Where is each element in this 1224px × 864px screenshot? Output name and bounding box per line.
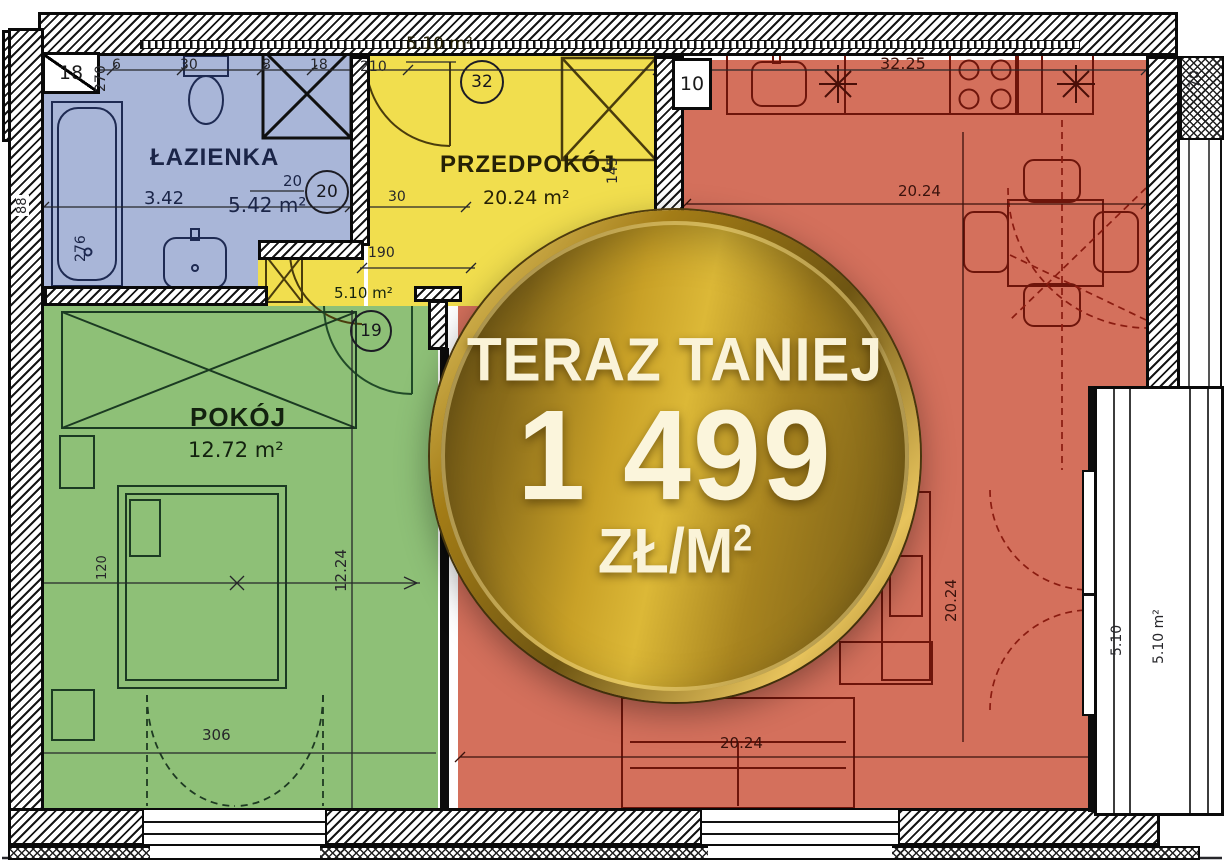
dim-120: 120 — [96, 555, 109, 580]
promo-badge: TERAZ TANIEJ 1 499 ZŁ/M2 — [430, 210, 920, 702]
wall-top — [38, 12, 1178, 56]
balcony — [1094, 386, 1224, 816]
dim-1224: 12.24 — [334, 549, 349, 592]
window-sill-living — [708, 846, 892, 858]
dim-210: 210 — [360, 60, 387, 74]
window-bedroom — [142, 808, 327, 846]
bedroom-tag-circle-label: 19 — [360, 321, 382, 341]
dim-6: 6 — [112, 58, 121, 72]
wall-left — [8, 28, 44, 818]
balcony-rail-upper — [1180, 140, 1222, 386]
wall-bathroom-hallway — [350, 56, 370, 246]
dim-306: 306 — [202, 728, 231, 743]
hallway-tag-area: 5.10 m² — [406, 36, 473, 53]
dim-30-top: 30 — [180, 58, 198, 72]
bedroom-tag-area: 5.10 m² — [334, 286, 393, 301]
bathroom-tag-circle: 20 — [305, 170, 349, 214]
wall-right — [1146, 56, 1180, 392]
shaft-label: 10 — [680, 73, 704, 95]
bathroom-secondary-dim: 3.42 — [144, 190, 184, 208]
ref-box-18: 18 — [42, 52, 100, 94]
bedroom-tag-circle: 19 — [350, 310, 392, 352]
badge-unit-text: ZŁ/M — [598, 516, 733, 586]
dim-30-hall: 30 — [388, 190, 406, 204]
bedroom-area: 12.72 m² — [188, 440, 284, 461]
bathroom-tag-value: 20 — [283, 174, 302, 189]
dim-2024-right: 20.24 — [944, 579, 959, 622]
badge-price: 1 499 — [517, 390, 832, 521]
balcony-area: 5.10 m² — [1152, 609, 1166, 664]
bathroom-tag-circle-label: 20 — [316, 182, 338, 202]
dim-18b: 18 — [310, 58, 328, 72]
dim-tub-276: 276 — [74, 235, 88, 262]
dim-8: 8 — [262, 58, 271, 72]
window-living — [700, 808, 900, 846]
insulation-corner-right — [1180, 56, 1224, 140]
dim-2024-top: 20.24 — [898, 184, 941, 199]
dim-190: 190 — [368, 246, 395, 260]
wall-bathroom-bedroom — [44, 286, 268, 306]
shaft-box: 10 — [672, 58, 712, 110]
floor-plan: 18 10 270 6 30 8 18 210 32.25 70 ŁAZIENK… — [0, 0, 1224, 864]
badge-unit: ZŁ/M2 — [598, 515, 752, 587]
dim-2024-bottom: 20.24 — [720, 736, 763, 751]
ref-box-18-label: 18 — [59, 62, 83, 84]
bedroom-name: POKÓJ — [190, 404, 286, 430]
hallway-tag-circle-label: 32 — [471, 72, 493, 92]
dim-88: 88 — [16, 195, 29, 216]
dim-270: 270 — [94, 65, 108, 92]
window-sill-bedroom — [150, 846, 320, 858]
top-wall-window-strip — [140, 40, 1080, 49]
dim-70: 70 — [1188, 70, 1202, 88]
hallway-tag-circle: 32 — [460, 60, 504, 104]
balcony-width-dim: 5.10 — [1110, 625, 1124, 656]
dim-145: 145 — [606, 157, 620, 184]
promo-badge-inner: TERAZ TANIEJ 1 499 ZŁ/M2 — [441, 221, 909, 691]
badge-unit-sup: 2 — [733, 518, 752, 559]
wall-pier-stem — [428, 300, 448, 350]
bathroom-name: ŁAZIENKA — [150, 146, 279, 170]
wall-bathroom-niche — [258, 240, 364, 260]
hallway-name: PRZEDPOKÓJ — [440, 153, 615, 177]
bathroom-area: 5.42 m² — [228, 195, 306, 215]
hallway-area: 20.24 m² — [483, 189, 570, 208]
dim-3225: 32.25 — [880, 56, 926, 72]
